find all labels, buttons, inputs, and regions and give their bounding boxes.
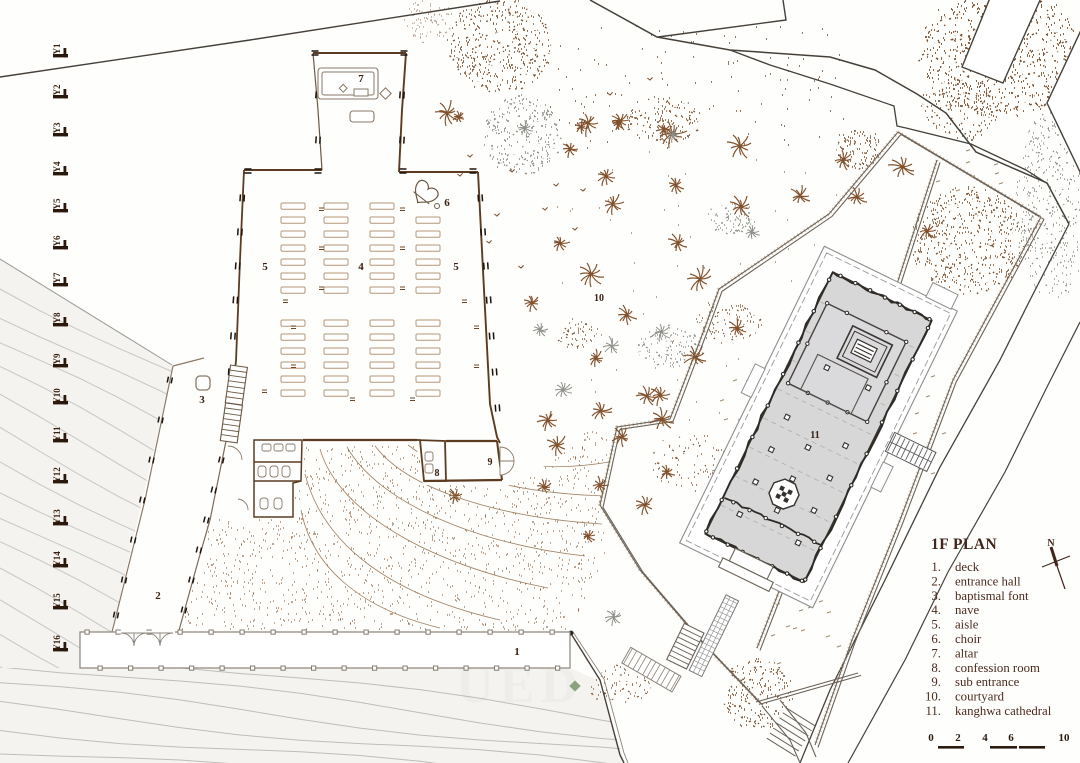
svg-text:9.: 9. <box>931 675 941 689</box>
svg-text:deck: deck <box>955 560 980 574</box>
svg-text:Y10: Y10 <box>52 388 62 404</box>
svg-text:2: 2 <box>155 590 161 602</box>
svg-text:Y1: Y1 <box>52 43 62 54</box>
svg-text:11: 11 <box>810 430 819 441</box>
svg-text:5: 5 <box>262 261 268 273</box>
svg-text:10: 10 <box>594 293 604 304</box>
svg-text:1F PLAN: 1F PLAN <box>931 536 997 553</box>
svg-text:entrance hall: entrance hall <box>955 574 1021 588</box>
svg-text:10.: 10. <box>925 690 941 704</box>
svg-text:11.: 11. <box>925 704 941 718</box>
svg-text:6.: 6. <box>931 632 941 646</box>
svg-text:Y16: Y16 <box>52 635 62 651</box>
svg-text:6: 6 <box>444 197 450 209</box>
svg-text:4: 4 <box>358 261 364 273</box>
svg-text:0: 0 <box>928 732 934 744</box>
svg-text:6: 6 <box>1008 732 1014 744</box>
svg-text:2: 2 <box>955 732 961 744</box>
svg-text:Y9: Y9 <box>52 353 62 364</box>
svg-text:Y12: Y12 <box>52 467 62 483</box>
svg-text:Y14: Y14 <box>52 551 62 567</box>
svg-text:Y15: Y15 <box>52 593 62 609</box>
svg-text:4: 4 <box>982 732 988 744</box>
svg-text:8.: 8. <box>931 661 941 675</box>
svg-text:7: 7 <box>358 73 364 85</box>
svg-text:Y2: Y2 <box>52 84 62 95</box>
svg-text:10: 10 <box>1059 732 1071 744</box>
svg-text:kanghwa cathedral: kanghwa cathedral <box>955 704 1052 718</box>
svg-text:aisle: aisle <box>955 618 979 632</box>
svg-text:choir: choir <box>955 632 982 646</box>
svg-text:3: 3 <box>199 394 205 406</box>
svg-text:4.: 4. <box>931 603 941 617</box>
svg-text:Y4: Y4 <box>52 161 62 172</box>
svg-text:Y3: Y3 <box>52 122 62 133</box>
svg-text:9: 9 <box>488 457 493 468</box>
svg-text:Y6: Y6 <box>52 235 62 246</box>
svg-text:baptismal font: baptismal font <box>955 589 1029 603</box>
svg-text:Y8: Y8 <box>52 312 62 323</box>
svg-text:courtyard: courtyard <box>955 690 1005 704</box>
svg-text:2.: 2. <box>931 574 941 588</box>
svg-text:altar: altar <box>955 646 978 660</box>
svg-text:nave: nave <box>955 603 979 617</box>
svg-text:N: N <box>1047 538 1055 549</box>
svg-text:3.: 3. <box>931 589 941 603</box>
svg-text:sub entrance: sub entrance <box>955 675 1020 689</box>
svg-text:Y13: Y13 <box>52 509 62 525</box>
svg-text:Y7: Y7 <box>52 272 62 283</box>
svg-text:5: 5 <box>453 261 459 273</box>
svg-text:UED: UED <box>456 657 584 714</box>
svg-text:8: 8 <box>435 468 440 479</box>
svg-text:5.: 5. <box>931 618 941 632</box>
svg-text:confession room: confession room <box>955 661 1040 675</box>
svg-text:1.: 1. <box>931 560 941 574</box>
svg-text:7.: 7. <box>931 646 941 660</box>
svg-text:Y11: Y11 <box>52 426 62 442</box>
svg-text:Y5: Y5 <box>52 198 62 209</box>
